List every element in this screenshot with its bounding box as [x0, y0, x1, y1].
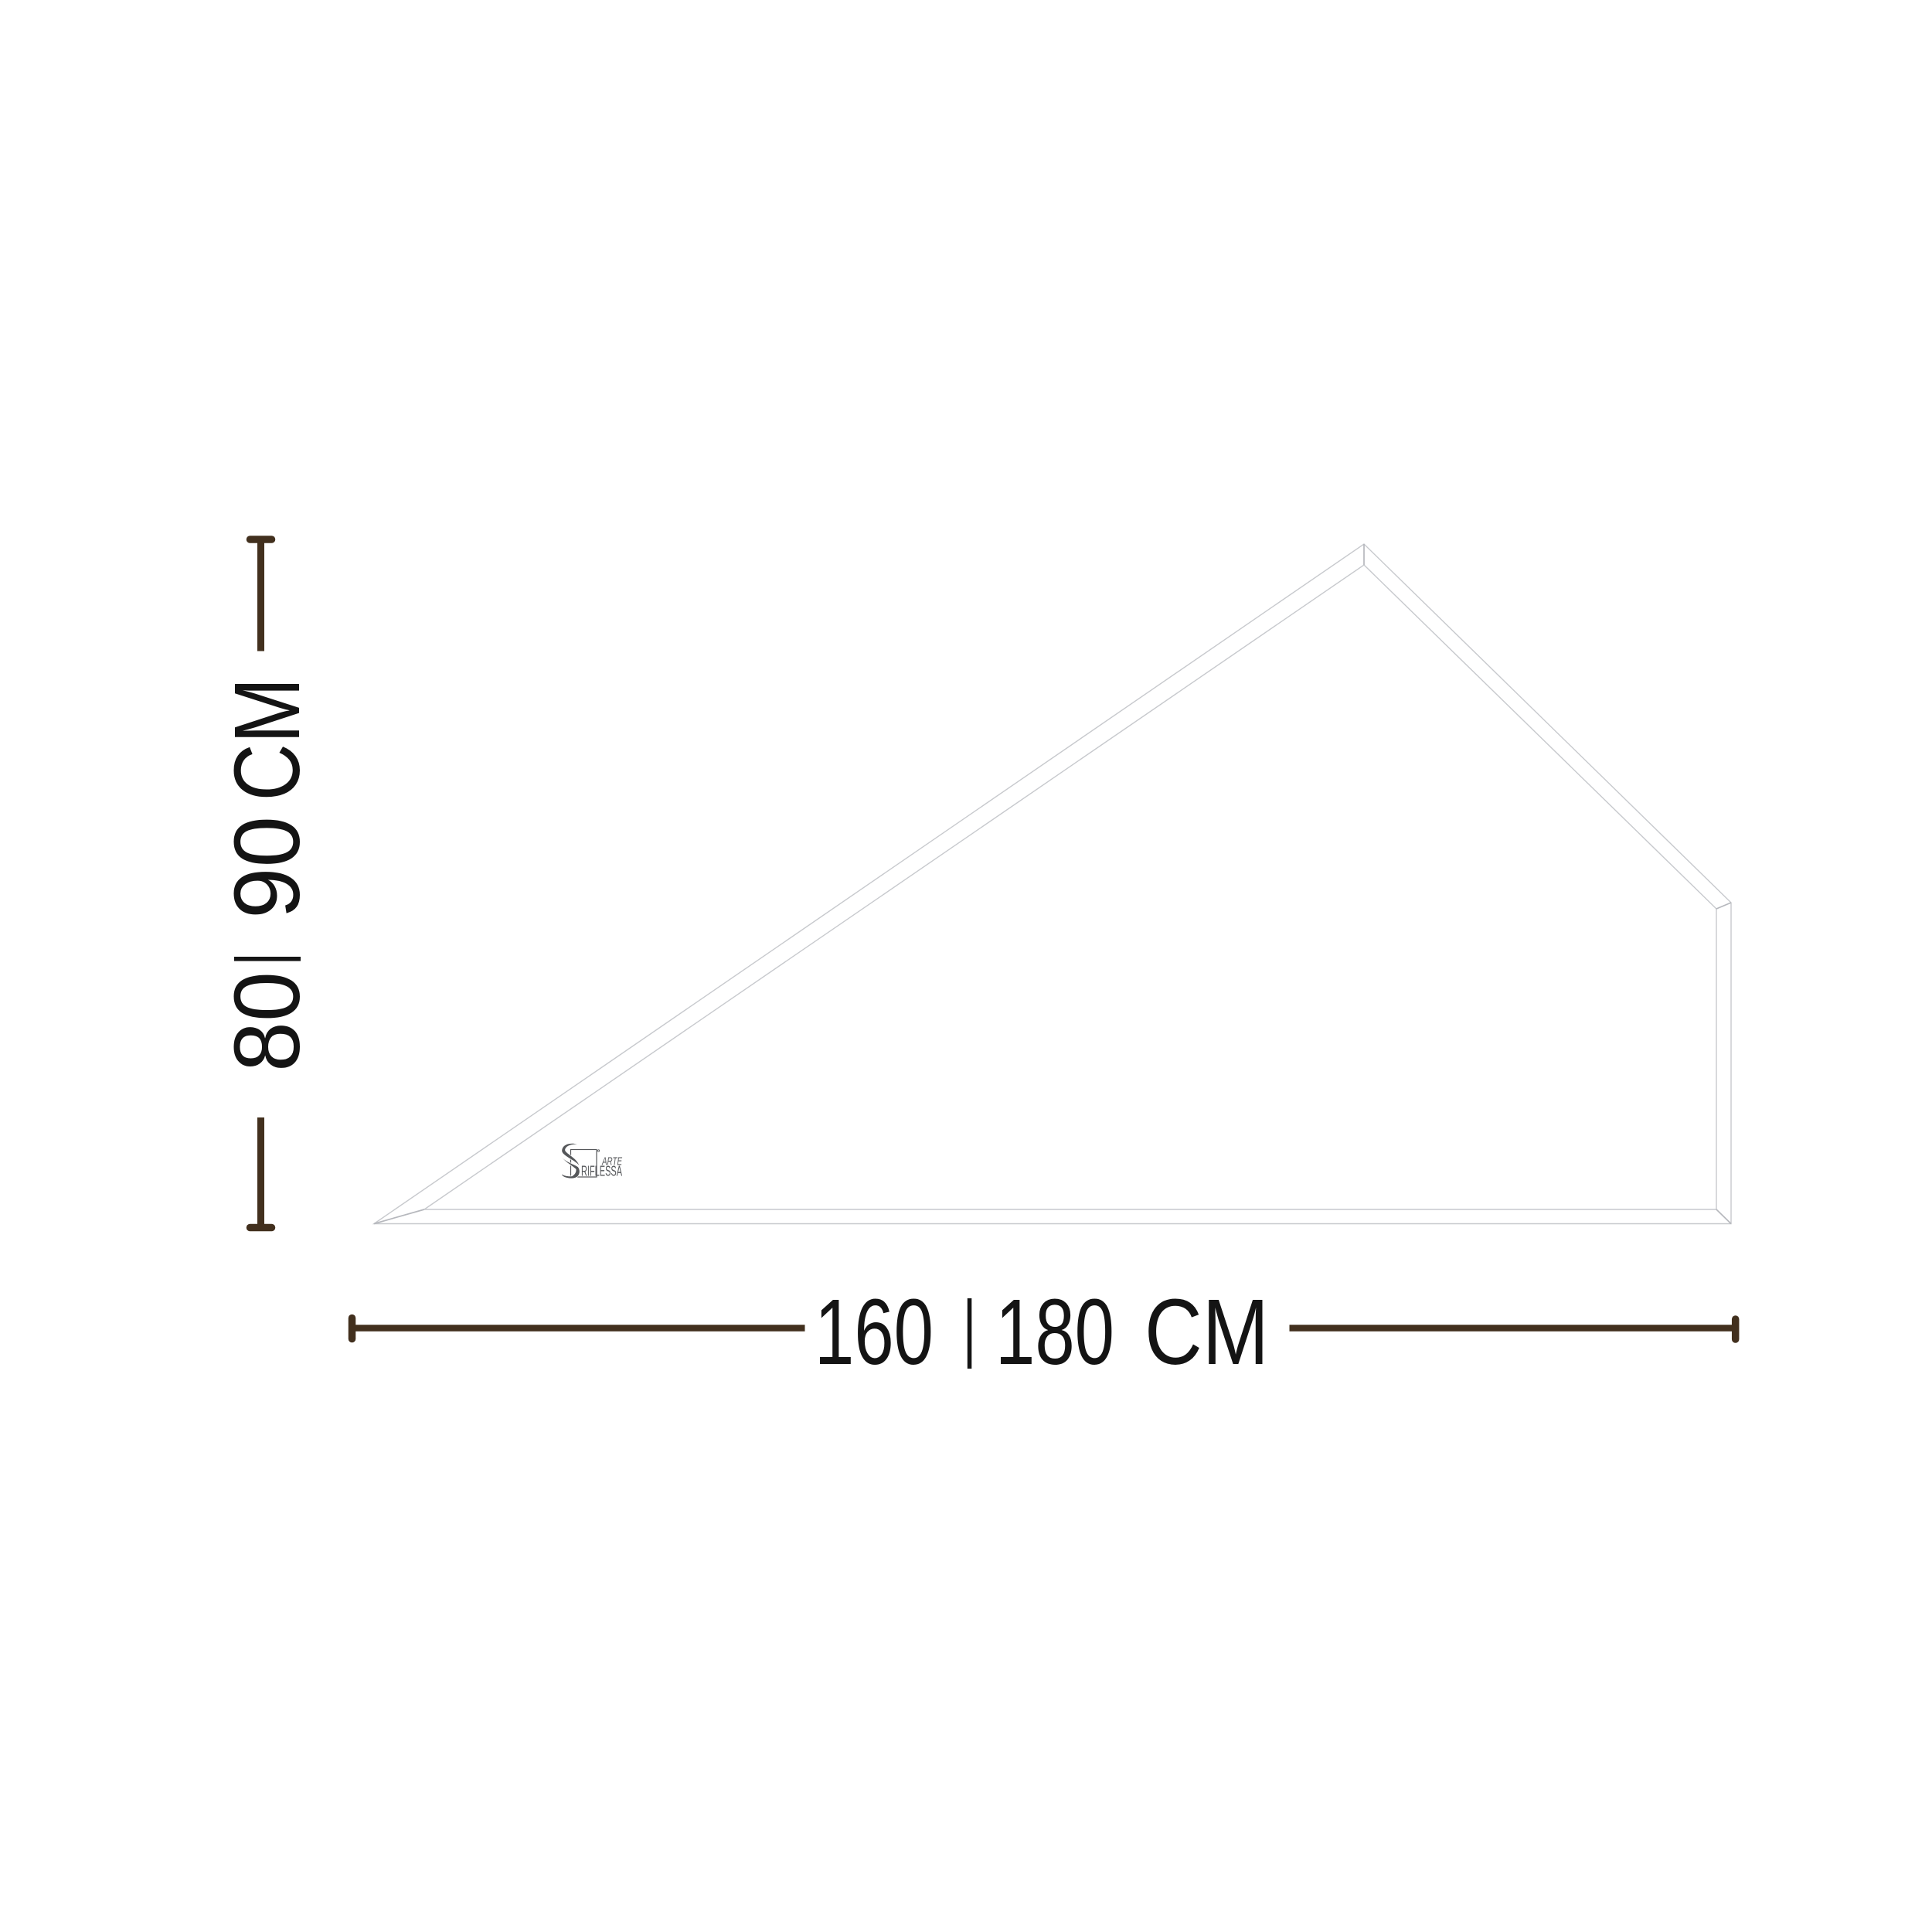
svg-text:160: 160	[815, 1279, 934, 1384]
svg-text:CM: CM	[214, 678, 319, 801]
svg-text:180: 180	[995, 1279, 1114, 1384]
svg-text:RIFLESSA: RIFLESSA	[581, 1164, 622, 1179]
svg-text:90: 90	[214, 816, 319, 919]
svg-text:80: 80	[214, 971, 319, 1072]
svg-text:CM: CM	[1145, 1279, 1269, 1384]
